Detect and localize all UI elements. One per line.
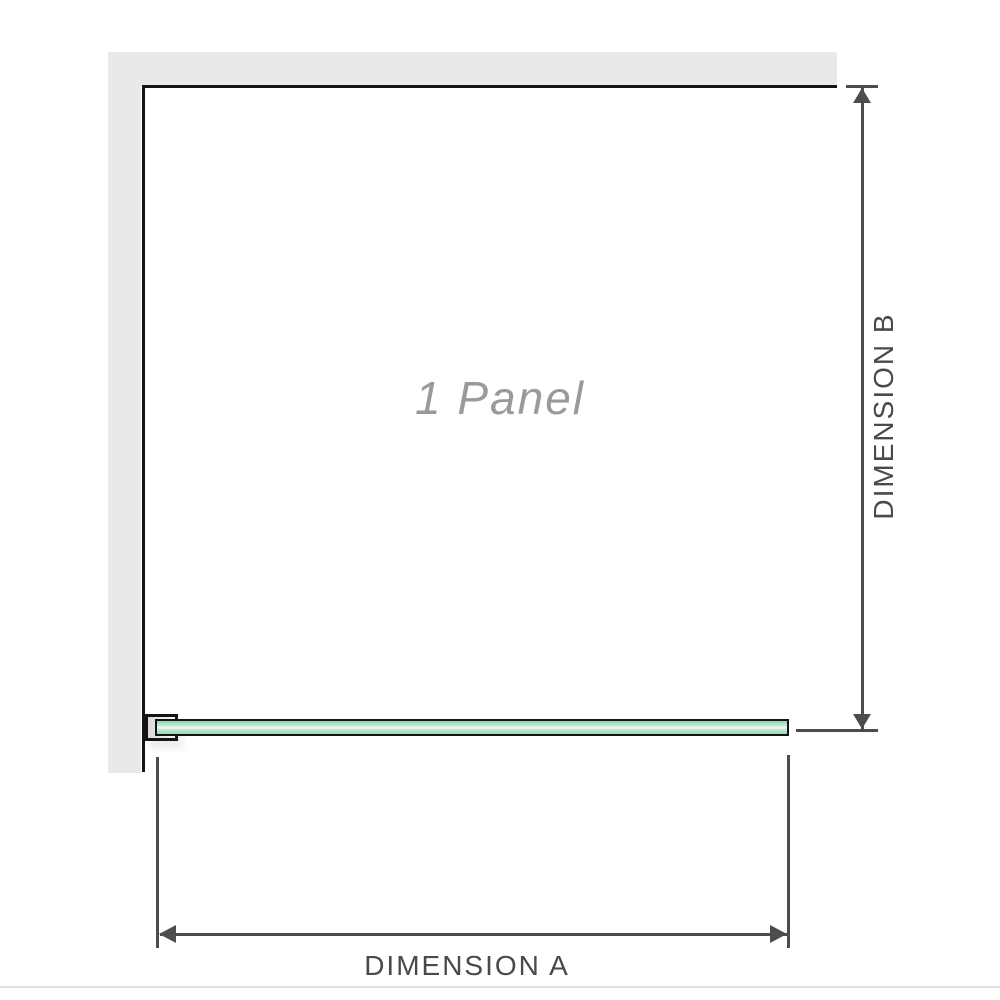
image-bottom-edge bbox=[0, 986, 1000, 988]
arrowhead-up-icon bbox=[853, 88, 871, 103]
arrowhead-right-icon bbox=[770, 925, 787, 943]
arrowhead-left-icon bbox=[159, 925, 176, 943]
arrowhead-down-icon bbox=[853, 714, 871, 729]
dimension-b-line bbox=[861, 88, 864, 729]
dimension-a-right-extension bbox=[787, 755, 790, 948]
panel-count-label: 1 Panel bbox=[350, 368, 650, 428]
panel-frame-left-edge bbox=[142, 85, 145, 772]
glass-panel bbox=[155, 719, 789, 736]
wall-top bbox=[108, 52, 837, 85]
panel-frame-top-edge bbox=[142, 85, 837, 88]
dimension-a-line bbox=[160, 933, 787, 936]
dimension-a-left-extension bbox=[156, 757, 159, 948]
panel-diagram: 1 Panel DIMENSION B DIMENSION A bbox=[0, 0, 1000, 1000]
dimension-b-label: DIMENSION B bbox=[869, 296, 899, 536]
dimension-b-bottom-tick bbox=[796, 729, 878, 732]
dimension-a-label: DIMENSION A bbox=[317, 950, 617, 982]
wall-left bbox=[108, 52, 141, 773]
